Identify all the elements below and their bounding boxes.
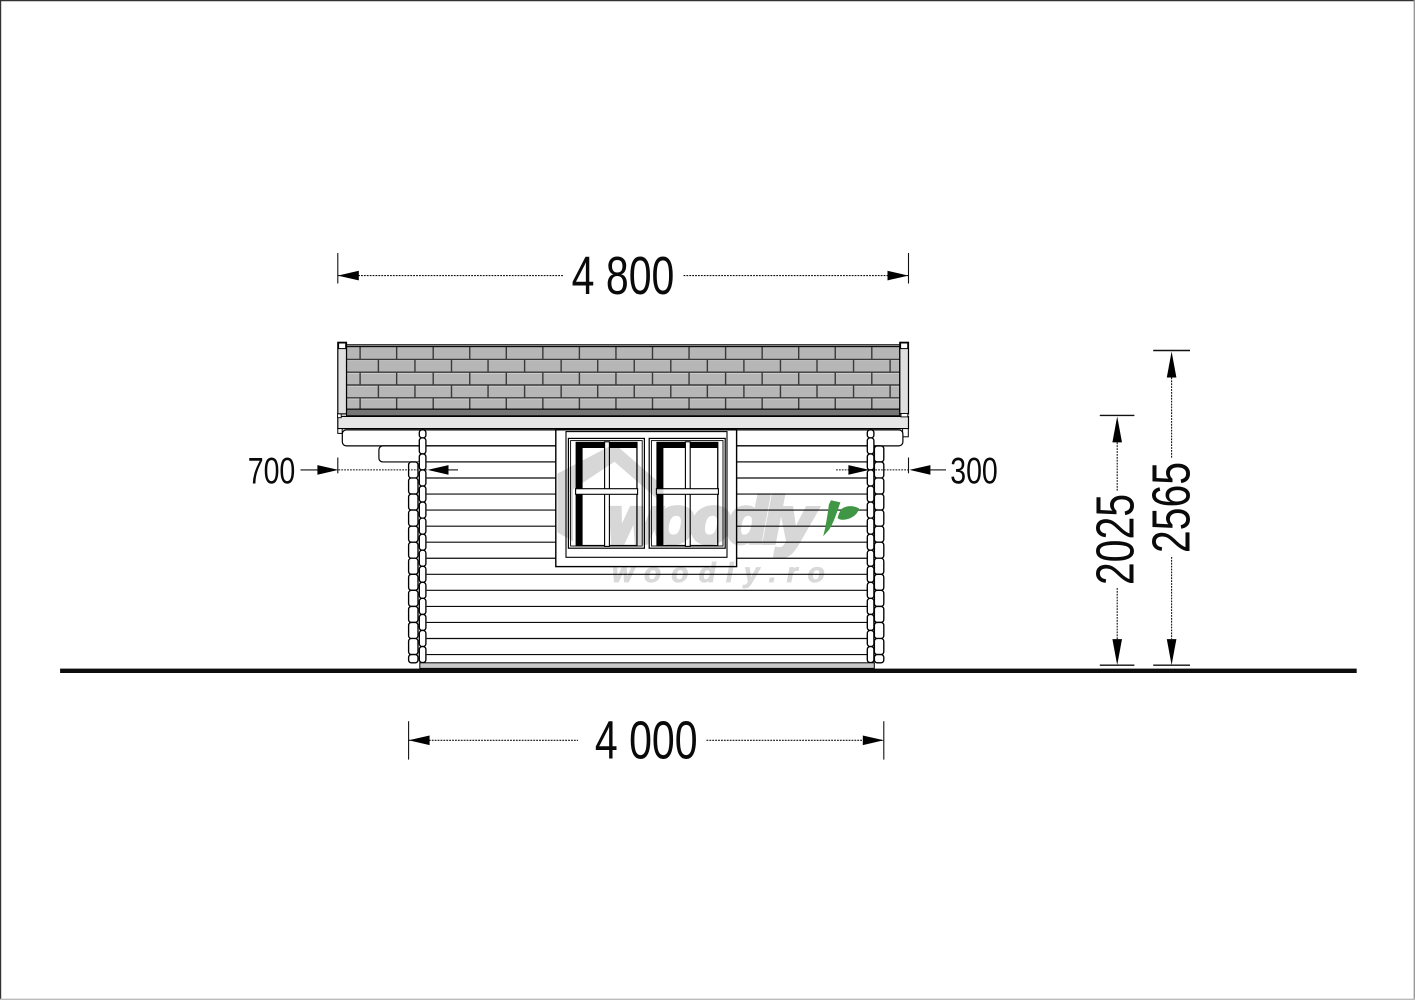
svg-text:woodly: woodly [608,484,817,557]
svg-text:300: 300 [950,451,998,493]
svg-text:700: 700 [248,451,296,493]
svg-text:4 800: 4 800 [572,247,675,307]
svg-text:2025: 2025 [1086,494,1146,585]
svg-text:woodly.ro: woodly.ro [612,557,835,588]
svg-text:2565: 2565 [1142,462,1202,553]
svg-text:4 000: 4 000 [595,711,698,771]
